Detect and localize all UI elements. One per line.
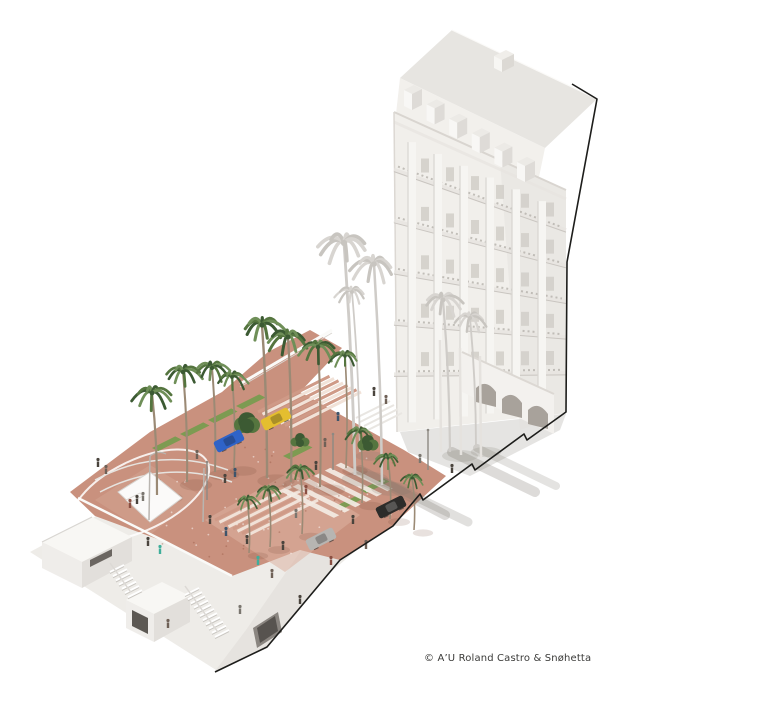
speckle <box>243 545 245 547</box>
person-head <box>233 468 236 471</box>
axonometric-scene <box>0 0 768 720</box>
person <box>195 450 198 459</box>
person <box>166 619 169 628</box>
speckle <box>271 455 273 457</box>
palm-crown <box>246 499 249 502</box>
speckle <box>334 481 336 483</box>
speckle <box>171 511 173 513</box>
palm-crown <box>343 354 347 358</box>
person-head <box>146 537 149 540</box>
person <box>304 485 307 494</box>
speckle <box>224 507 226 509</box>
credit-caption: © A’U Roland Castro & Snøhetta <box>424 653 591 664</box>
speckle <box>305 510 307 512</box>
person <box>96 458 99 467</box>
window <box>546 240 554 254</box>
person-head <box>281 541 284 544</box>
palm-crown <box>441 298 446 303</box>
speckle <box>240 510 242 512</box>
speckle <box>166 525 168 527</box>
palm-crown <box>468 316 472 320</box>
person <box>224 527 227 536</box>
speckle <box>263 529 265 531</box>
palm-crown <box>150 391 155 396</box>
window <box>521 272 529 286</box>
speckle <box>312 475 314 477</box>
window <box>496 310 504 324</box>
speckle <box>193 542 195 544</box>
bush-part <box>363 441 373 451</box>
palm-ground-shadow <box>413 529 433 536</box>
window <box>521 194 529 208</box>
person <box>141 492 144 501</box>
palm-ground-shadow <box>268 546 290 554</box>
window <box>546 277 554 291</box>
person-head <box>256 556 259 559</box>
speckle <box>242 548 244 550</box>
speckle <box>366 491 368 493</box>
person-head <box>245 535 248 538</box>
person-head <box>104 465 107 468</box>
person <box>298 595 301 604</box>
person-head <box>351 515 354 518</box>
person <box>128 499 131 508</box>
window <box>421 207 429 221</box>
window <box>471 264 479 278</box>
palm-crown <box>266 488 269 491</box>
person <box>384 395 387 404</box>
palm-crown <box>411 477 414 480</box>
speckle <box>195 544 197 546</box>
person <box>418 454 421 463</box>
window <box>421 255 429 269</box>
person <box>323 438 326 447</box>
person-head <box>329 556 332 559</box>
person <box>270 569 273 578</box>
palm-crown <box>358 430 361 433</box>
person <box>450 464 453 473</box>
window <box>546 314 554 328</box>
window <box>546 351 554 365</box>
bush-part <box>240 419 254 433</box>
speckle <box>207 534 209 536</box>
person-head <box>224 527 227 530</box>
window <box>446 260 454 274</box>
light-pole-head <box>332 433 335 436</box>
person-head <box>166 619 169 622</box>
palm-crown <box>350 290 354 294</box>
palm-crown <box>259 322 264 327</box>
speckle <box>222 553 224 555</box>
sail-mast <box>203 468 204 522</box>
person-head <box>336 412 339 415</box>
palm-crown <box>230 375 234 379</box>
palm-crown <box>298 468 301 471</box>
window <box>421 352 429 366</box>
speckle <box>272 497 274 499</box>
speckle <box>244 447 246 449</box>
speckle <box>225 545 227 547</box>
speckle <box>162 543 164 545</box>
person <box>223 474 226 483</box>
speckle <box>297 507 299 509</box>
palm-crown <box>316 345 321 350</box>
palm-ground-shadow <box>371 482 412 496</box>
speckle <box>308 498 310 500</box>
person-head <box>298 595 301 598</box>
person <box>233 468 236 477</box>
speckle <box>191 528 193 530</box>
person-head <box>323 438 326 441</box>
person <box>158 545 161 554</box>
speckle <box>253 456 255 458</box>
window <box>446 213 454 227</box>
palm-crown <box>341 240 347 246</box>
architectural-render-figure: © A’U Roland Castro & Snøhetta <box>0 0 768 720</box>
speckle <box>236 524 238 526</box>
window <box>546 203 554 217</box>
palm-crown <box>386 456 389 459</box>
person-head <box>158 545 161 548</box>
speckle <box>367 493 369 495</box>
person-head <box>294 509 297 512</box>
window <box>496 268 504 282</box>
person <box>245 535 248 544</box>
person-head <box>384 395 387 398</box>
person-head <box>372 387 375 390</box>
person <box>294 509 297 518</box>
window <box>471 220 479 234</box>
person-head <box>223 474 226 477</box>
speckle <box>235 498 237 500</box>
light-pole-head <box>206 461 209 464</box>
person-head <box>128 499 131 502</box>
speckle <box>343 486 345 488</box>
person-head <box>418 454 421 457</box>
person <box>208 515 211 524</box>
pilaster <box>538 201 546 408</box>
person-head <box>208 515 211 518</box>
speckle <box>270 461 272 463</box>
speckle <box>274 512 276 514</box>
window <box>446 167 454 181</box>
person <box>135 495 138 504</box>
window <box>496 351 504 365</box>
speckle <box>338 495 340 497</box>
person <box>372 387 375 396</box>
window <box>496 185 504 199</box>
person-head <box>195 450 198 453</box>
window <box>521 233 529 247</box>
speckle <box>299 502 301 504</box>
person-head <box>304 485 307 488</box>
person <box>329 556 332 565</box>
person <box>146 537 149 546</box>
speckle <box>341 510 343 512</box>
palm-ground-shadow <box>471 447 502 457</box>
speckle <box>208 556 210 558</box>
window <box>421 159 429 173</box>
speckle <box>334 499 336 501</box>
bush-part <box>296 439 304 447</box>
speckle <box>176 481 178 483</box>
person-head <box>314 461 317 464</box>
person-head <box>270 569 273 572</box>
person <box>314 461 317 470</box>
speckle <box>318 526 320 528</box>
person <box>351 515 354 524</box>
light-pole-head <box>427 429 430 432</box>
person-head <box>141 492 144 495</box>
person-head <box>450 464 453 467</box>
speckle <box>300 505 302 507</box>
speckle <box>267 528 269 530</box>
window <box>471 176 479 190</box>
sail-mast <box>149 456 150 520</box>
person <box>281 541 284 550</box>
palm-crown <box>210 366 214 370</box>
palm-crown <box>371 261 377 267</box>
window <box>521 351 529 365</box>
person-head <box>135 495 138 498</box>
person <box>104 465 107 474</box>
background <box>0 0 768 720</box>
person <box>238 605 241 614</box>
speckle <box>348 496 350 498</box>
pilaster <box>408 142 416 422</box>
speckle <box>257 461 259 463</box>
speckle <box>227 540 229 542</box>
person <box>336 412 339 421</box>
speckle <box>290 552 292 554</box>
window <box>496 227 504 241</box>
person-head <box>96 458 99 461</box>
speckle <box>289 496 291 498</box>
speckle <box>299 523 301 525</box>
palm-crown <box>181 370 186 375</box>
person <box>256 556 259 565</box>
person-head <box>238 605 241 608</box>
speckle <box>222 531 224 533</box>
speckle <box>242 523 244 525</box>
window <box>521 312 529 326</box>
speckle <box>278 531 280 533</box>
speckle <box>273 451 275 453</box>
palm-ground-shadow <box>313 484 345 495</box>
palm-crown <box>285 334 290 339</box>
speckle <box>287 494 289 496</box>
palm-ground-shadow <box>282 479 318 492</box>
